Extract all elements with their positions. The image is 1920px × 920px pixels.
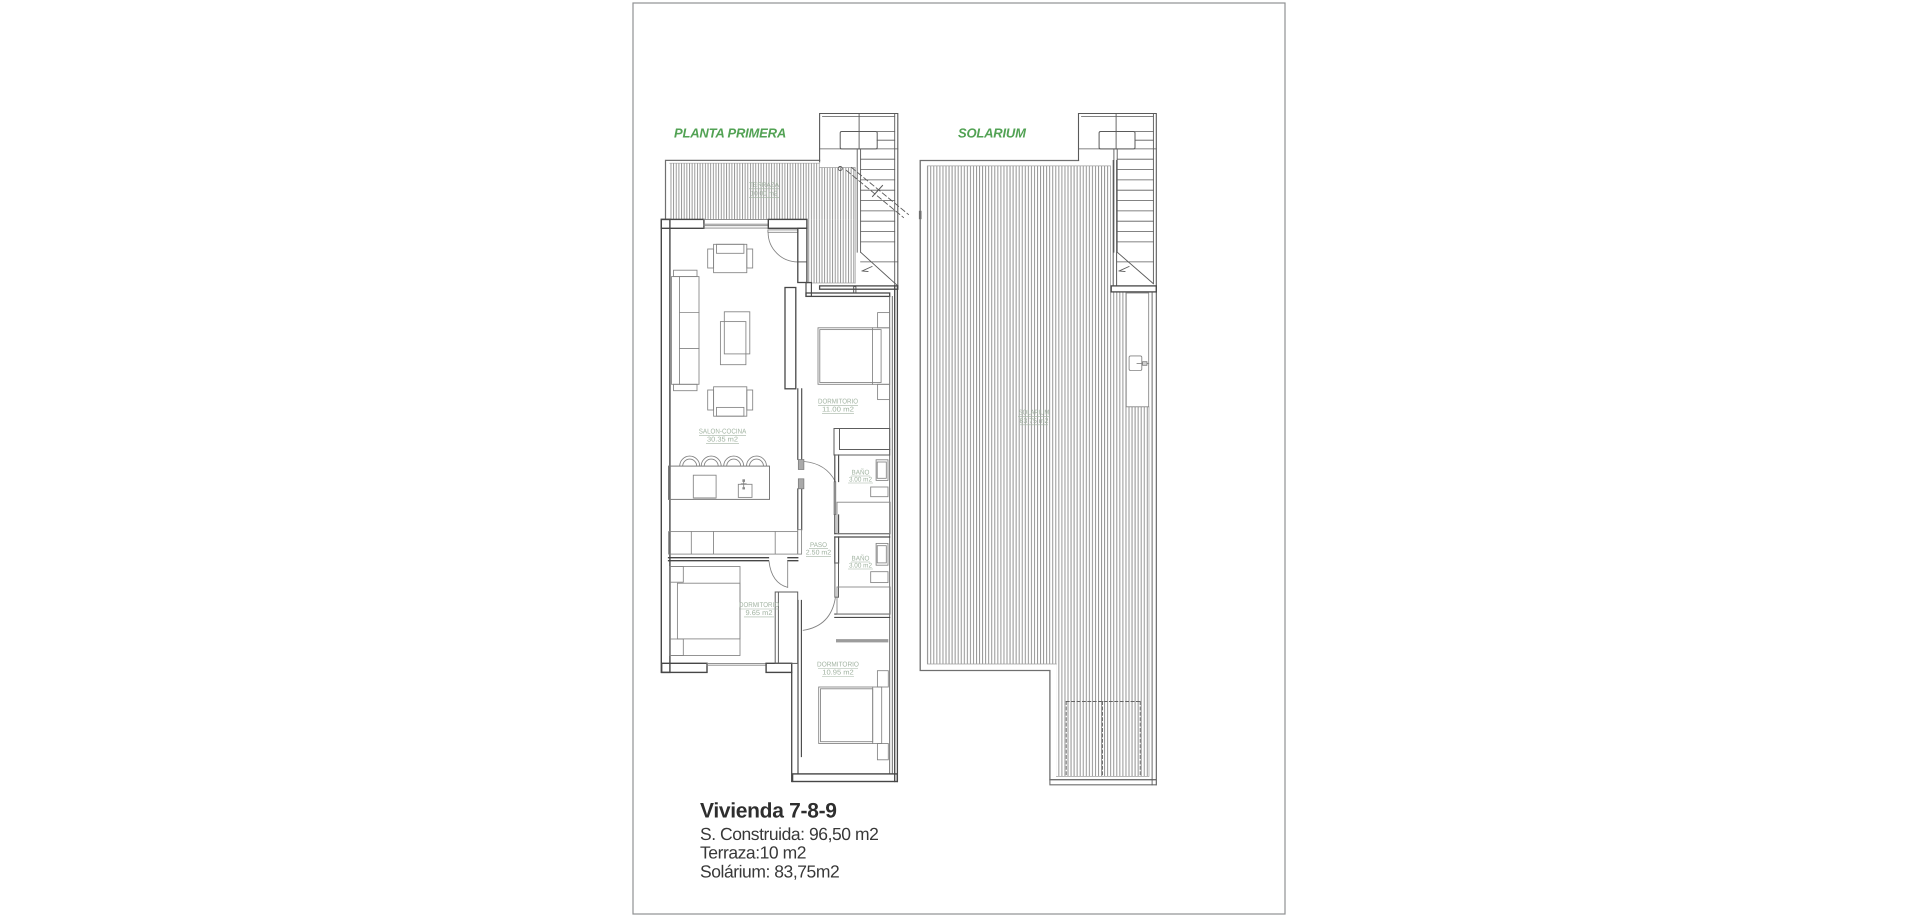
svg-text:10.95 m2: 10.95 m2 xyxy=(822,670,854,677)
svg-text:PLANTA PRIMERA: PLANTA PRIMERA xyxy=(674,126,786,141)
svg-text:3.00 m2: 3.00 m2 xyxy=(849,562,872,569)
svg-text:DORMITORIO: DORMITORIO xyxy=(818,399,858,406)
svg-text:SOLARIUM: SOLARIUM xyxy=(1019,409,1050,416)
svg-text:10.00 m2: 10.00 m2 xyxy=(751,191,778,198)
svg-text:S. Construida: 96,50 m2: S. Construida: 96,50 m2 xyxy=(700,824,878,844)
svg-text:9.65 m2: 9.65 m2 xyxy=(746,610,773,617)
svg-text:TERRAZA: TERRAZA xyxy=(749,182,779,189)
svg-text:11.00 m2: 11.00 m2 xyxy=(822,406,854,413)
svg-text:83.75 m2: 83.75 m2 xyxy=(1020,418,1049,425)
svg-text:Vivienda 7-8-9: Vivienda 7-8-9 xyxy=(700,800,837,823)
svg-text:SALON-COCINA: SALON-COCINA xyxy=(699,429,747,436)
svg-text:SOLARIUM: SOLARIUM xyxy=(958,126,1027,141)
svg-text:2.50 m2: 2.50 m2 xyxy=(806,550,832,557)
svg-text:BAÑO: BAÑO xyxy=(852,469,870,477)
svg-text:DORMITORIO: DORMITORIO xyxy=(817,662,859,669)
svg-text:Terraza:10 m2: Terraza:10 m2 xyxy=(700,843,806,863)
svg-text:30.35 m2: 30.35 m2 xyxy=(707,437,738,444)
svg-text:BAÑO: BAÑO xyxy=(852,554,870,562)
svg-text:Solárium: 83,75m2: Solárium: 83,75m2 xyxy=(700,861,839,881)
svg-text:DORMITORIO: DORMITORIO xyxy=(739,602,779,609)
svg-text:3.00 m2: 3.00 m2 xyxy=(849,476,872,483)
svg-text:PASO: PASO xyxy=(810,542,827,549)
